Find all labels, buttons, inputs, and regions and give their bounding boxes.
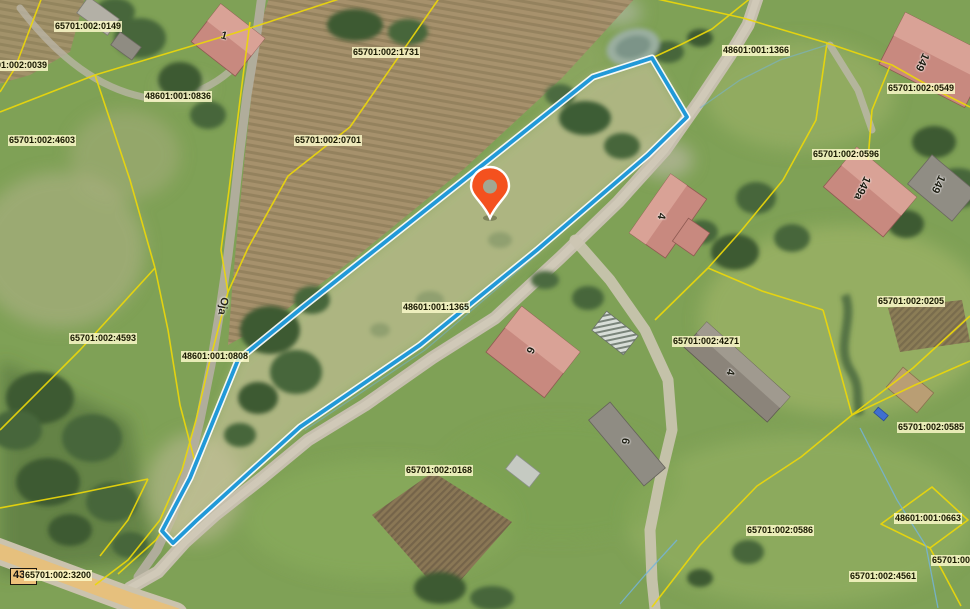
parcel-id-label: 65701:002:0168 (405, 465, 473, 476)
parcel-id-label: 65701:002:4271 (672, 336, 740, 347)
parcel-id-label: 65701:002:0 (931, 555, 970, 566)
parcel-id-label: 48601:001:1365 (402, 302, 470, 313)
parcel-id-label: 65701:002:0205 (877, 296, 945, 307)
parcel-id-label: 65701:002:0039 (0, 60, 48, 71)
parcel-id-label: 65701:002:1731 (352, 47, 420, 58)
parcel-id-label: 65701:002:0149 (54, 21, 122, 32)
map-viewport[interactable]: 65701:002:0149 65701:002:0039 48601:001:… (0, 0, 970, 609)
parcel-id-label: 65701:002:0596 (812, 149, 880, 160)
parcel-id-label: 65701:002:4603 (8, 135, 76, 146)
parcel-id-label: 48601:001:0836 (144, 91, 212, 102)
parcel-id-label: 65701:002:0549 (887, 83, 955, 94)
parcel-id-label: 48601:001:0663 (894, 513, 962, 524)
parcel-id-label: 65701:002:4561 (849, 571, 917, 582)
parcel-id-label: 65701:002:4593 (69, 333, 137, 344)
parcel-id-label: 48601:001:1366 (722, 45, 790, 56)
parcel-id-label: 65701:002:0585 (897, 422, 965, 433)
parcel-id-label: 65701:002:3200 (24, 570, 92, 581)
parcel-id-label: 65701:002:0586 (746, 525, 814, 536)
parcel-id-label: 48601:001:0808 (181, 351, 249, 362)
parcel-id-label: 65701:002:0701 (294, 135, 362, 146)
